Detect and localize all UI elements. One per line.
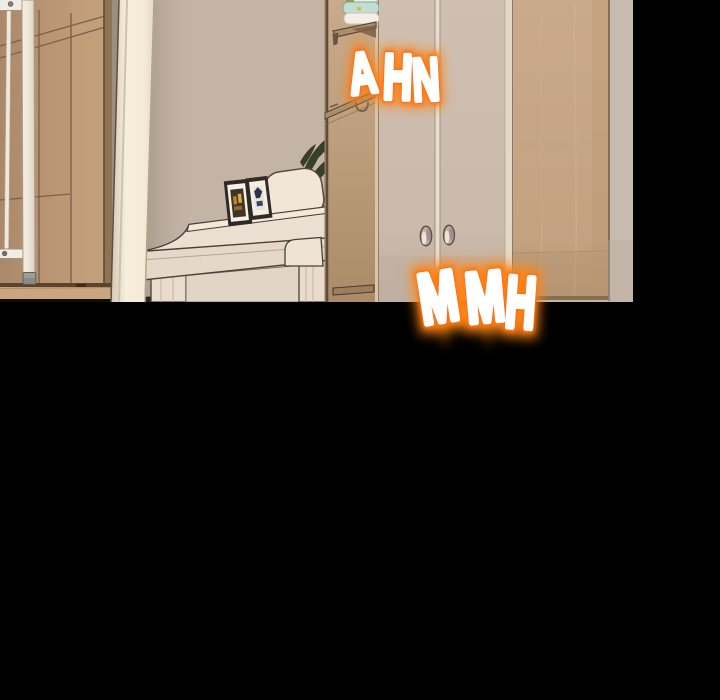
svg-text:M: M bbox=[462, 256, 507, 338]
svg-text:N: N bbox=[411, 46, 442, 114]
svg-text:H: H bbox=[503, 262, 539, 343]
svg-text:H: H bbox=[382, 41, 414, 113]
